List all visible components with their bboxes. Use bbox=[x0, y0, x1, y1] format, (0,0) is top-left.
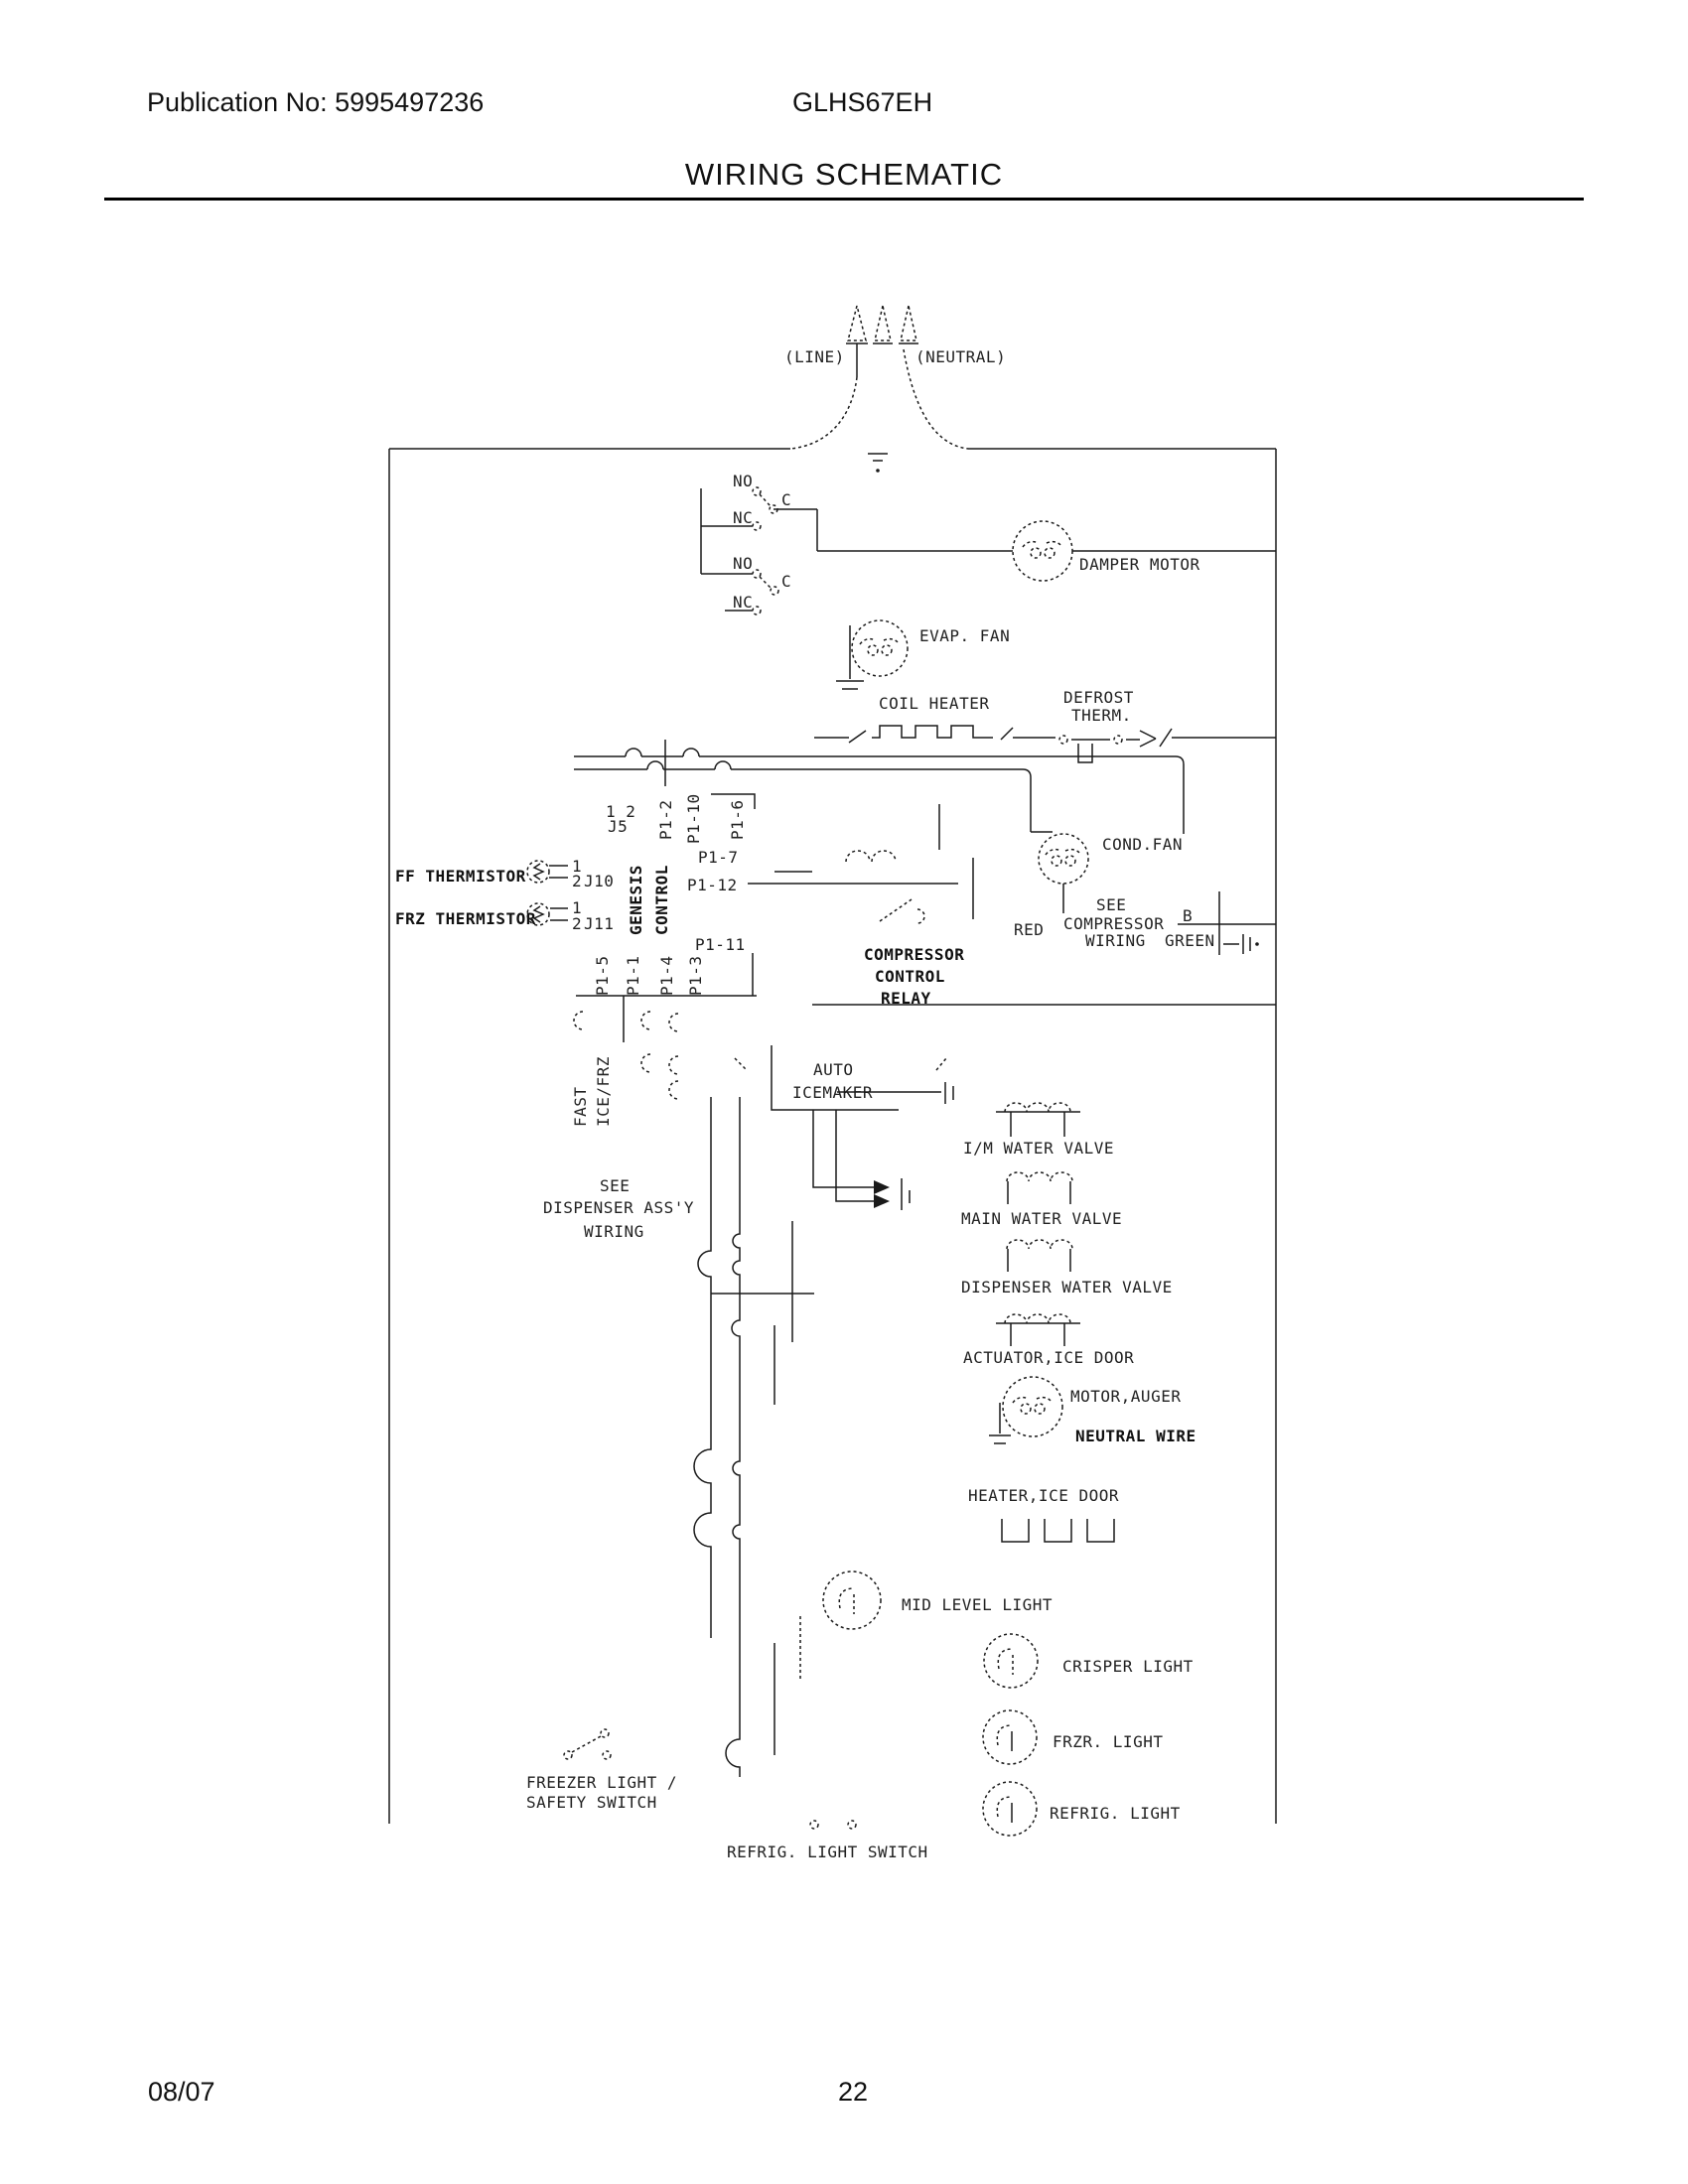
label-relay-2: CONTROL bbox=[875, 967, 945, 986]
motor-body bbox=[1013, 521, 1072, 581]
solenoid-coil-icon bbox=[996, 1314, 1080, 1346]
lamp-bulb bbox=[983, 1710, 1037, 1764]
contact-c bbox=[771, 587, 778, 595]
actuator-ice-door: ACTUATOR,ICE DOOR bbox=[963, 1314, 1134, 1367]
label-p1-6: P1-6 bbox=[728, 799, 747, 840]
label-neutral-wire: NEUTRAL WIRE bbox=[1075, 1427, 1196, 1445]
label-defrost-1: DEFROST bbox=[1063, 688, 1134, 707]
contact bbox=[601, 1729, 609, 1737]
motor-winding bbox=[1021, 1404, 1031, 1414]
im-water-valve: I/M WATER VALVE bbox=[963, 1103, 1114, 1158]
therm-contact bbox=[1114, 736, 1122, 744]
ground-bars bbox=[868, 454, 888, 461]
label-frz-thermistor: FRZ THERMISTOR bbox=[395, 909, 536, 928]
lamp-icon bbox=[984, 1634, 1038, 1688]
mid-level-light: MID LEVEL LIGHT bbox=[823, 1571, 1053, 1629]
thermistor-icon bbox=[527, 861, 549, 883]
solenoid-coil-icon bbox=[1007, 1172, 1072, 1204]
wiring-schematic: (LINE) (NEUTRAL) NO C NC NO C NC bbox=[0, 0, 1688, 2184]
label-j10: J10 bbox=[584, 872, 614, 890]
label-relay-1: COMPRESSOR bbox=[864, 945, 964, 964]
ground-icon bbox=[868, 454, 888, 473]
dispenser-water-valve: DISPENSER WATER VALVE bbox=[961, 1240, 1173, 1297]
auger-motor: MOTOR,AUGER NEUTRAL WIRE bbox=[989, 1377, 1196, 1445]
contact bbox=[603, 1751, 611, 1759]
door-switches: NO C NC NO C NC bbox=[701, 472, 1276, 614]
switch-icon bbox=[564, 1729, 611, 1759]
motor-arcs bbox=[1013, 1398, 1053, 1403]
main-water-valve: MAIN WATER VALVE bbox=[961, 1172, 1122, 1228]
label-j11: J11 bbox=[584, 914, 614, 933]
contact-nc bbox=[753, 607, 761, 614]
coil-leads bbox=[1008, 1181, 1070, 1204]
wire-dot bbox=[1255, 942, 1259, 946]
cond-fan: COND.FAN bbox=[1039, 834, 1183, 884]
label-green: GREEN bbox=[1165, 931, 1215, 950]
contact bbox=[810, 1821, 818, 1829]
motor-icon bbox=[1003, 1377, 1062, 1436]
lamp-bulb bbox=[984, 1634, 1038, 1688]
label-p1-7: P1-7 bbox=[698, 848, 739, 867]
ground-icon bbox=[836, 625, 864, 689]
frz-thermistor: FRZ THERMISTOR 1 2 J11 bbox=[395, 898, 614, 933]
solenoid-coil-icon bbox=[1007, 1240, 1072, 1272]
heater-element-icon bbox=[872, 726, 993, 738]
solenoid-coil-icon bbox=[996, 1103, 1080, 1137]
lamp-filament bbox=[998, 1649, 1013, 1669]
motor-body bbox=[1003, 1377, 1062, 1436]
switch-blade bbox=[760, 494, 771, 506]
label-frzr-light: FRZR. LIGHT bbox=[1053, 1732, 1163, 1751]
label-p1-5: P1-5 bbox=[593, 955, 612, 996]
label-wiring: WIRING bbox=[1085, 931, 1146, 950]
label-motor-auger: MOTOR,AUGER bbox=[1070, 1387, 1181, 1406]
motor-arcs bbox=[1046, 850, 1081, 855]
connector-pin-icon bbox=[874, 1194, 890, 1208]
lamp-icon bbox=[983, 1710, 1037, 1764]
lamp-bulb bbox=[983, 1782, 1037, 1836]
lamp-filament bbox=[997, 1725, 1012, 1745]
motor-icon bbox=[1039, 834, 1088, 884]
motor-winding bbox=[1065, 856, 1075, 866]
ground-bars bbox=[989, 1403, 1011, 1443]
lamp-filament bbox=[839, 1588, 854, 1608]
compressor-control-relay: COMPRESSOR CONTROL RELAY bbox=[774, 804, 1276, 1008]
relay-blade bbox=[880, 899, 924, 923]
coil-bumps bbox=[1007, 1172, 1072, 1181]
label-b: B bbox=[1183, 906, 1193, 925]
label-coil-heater: COIL HEATER bbox=[879, 694, 989, 713]
label-refrig-light-switch: REFRIG. LIGHT SWITCH bbox=[727, 1843, 928, 1861]
label-refrig-light: REFRIG. LIGHT bbox=[1050, 1804, 1181, 1823]
label-control: CONTROL bbox=[652, 865, 671, 935]
harness-wires bbox=[694, 1097, 814, 1777]
label-p1-2: P1-2 bbox=[656, 799, 675, 840]
label-p1-1: P1-1 bbox=[624, 955, 642, 996]
frame-lines bbox=[389, 449, 1276, 1824]
contact-no bbox=[753, 570, 761, 578]
label-line: (LINE) bbox=[784, 347, 845, 366]
motor-winding bbox=[868, 645, 878, 655]
contact-nc bbox=[753, 522, 761, 530]
footer-page-number: 22 bbox=[838, 2077, 868, 2108]
label-im-water-valve: I/M WATER VALVE bbox=[963, 1139, 1114, 1158]
motor-winding bbox=[1031, 548, 1041, 558]
motor-winding bbox=[1052, 856, 1061, 866]
motor-icon bbox=[852, 620, 908, 676]
plug-prong-bases bbox=[846, 343, 918, 377]
footer-date: 08/07 bbox=[148, 2077, 215, 2108]
contact bbox=[564, 1751, 572, 1759]
label-c-2: C bbox=[781, 572, 791, 591]
refrig-light: REFRIG. LIGHT bbox=[983, 1782, 1181, 1836]
lamp-icon bbox=[823, 1571, 881, 1629]
label-p1-3: P1-3 bbox=[686, 955, 705, 996]
frzr-light: FRZR. LIGHT bbox=[983, 1710, 1163, 1764]
icemaker-circuit: FAST ICE/FRZ AUTO ICEMAKER SEE DISPENSER… bbox=[543, 1012, 953, 1777]
coil-bumps bbox=[1005, 1314, 1070, 1323]
label-no-2: NO bbox=[733, 554, 753, 573]
label-dispenser-water-valve: DISPENSER WATER VALVE bbox=[961, 1278, 1173, 1297]
label-red: RED bbox=[1014, 920, 1044, 939]
refrig-light-switch: REFRIG. LIGHT SWITCH bbox=[727, 1821, 928, 1861]
label-ice-frz: ICE/FRZ bbox=[594, 1056, 613, 1127]
contact bbox=[848, 1821, 856, 1829]
label-fast: FAST bbox=[571, 1086, 590, 1127]
heater-element-icon bbox=[1002, 1519, 1114, 1542]
ground-icon bbox=[989, 1403, 1011, 1443]
coil-bumps bbox=[1005, 1103, 1070, 1112]
motor-icon bbox=[1013, 521, 1072, 581]
defrost-circuit: COIL HEATER DEFROST THERM. bbox=[814, 688, 1276, 762]
label-p1-4: P1-4 bbox=[657, 955, 676, 996]
label-defrost-2: THERM. bbox=[1071, 706, 1132, 725]
relay-wires bbox=[774, 804, 1276, 1005]
label-damper-motor: DAMPER MOTOR bbox=[1079, 555, 1200, 574]
ice-door-heater: HEATER,ICE DOOR bbox=[968, 1486, 1119, 1542]
label-freezer-switch-1: FREEZER LIGHT / bbox=[526, 1773, 677, 1792]
icemaker-wires bbox=[772, 1045, 953, 1210]
label-nc-2: NC bbox=[733, 593, 753, 612]
label-actuator-ice-door: ACTUATOR,ICE DOOR bbox=[963, 1348, 1134, 1367]
label-main-water-valve: MAIN WATER VALVE bbox=[961, 1209, 1122, 1228]
switch-blade bbox=[572, 1736, 601, 1752]
ground-dot bbox=[876, 469, 880, 473]
motor-winding bbox=[882, 645, 892, 655]
document-page: Publication No: 5995497236 GLHS67EH WIRI… bbox=[0, 0, 1688, 2184]
label-p1-11: P1-11 bbox=[695, 935, 746, 954]
label-relay-3: RELAY bbox=[881, 989, 931, 1008]
coil-leads bbox=[996, 1323, 1080, 1346]
connector-pin-icon bbox=[874, 1180, 890, 1194]
lamp-bulb bbox=[823, 1571, 881, 1629]
label-evap-fan: EVAP. FAN bbox=[919, 626, 1010, 645]
bus-line-2 bbox=[574, 761, 1031, 832]
label-mid-level-light: MID LEVEL LIGHT bbox=[902, 1595, 1053, 1614]
label-heater-ice-door: HEATER,ICE DOOR bbox=[968, 1486, 1119, 1505]
evap-fan: EVAP. FAN bbox=[836, 620, 1010, 689]
label-no-1: NO bbox=[733, 472, 753, 490]
motor-winding bbox=[1035, 1404, 1045, 1414]
crisper-light: CRISPER LIGHT bbox=[984, 1634, 1194, 1688]
label-see: SEE bbox=[1096, 895, 1126, 914]
switch-blade bbox=[760, 577, 772, 589]
label-nc-1: NC bbox=[733, 508, 753, 527]
motor-winding bbox=[1045, 548, 1055, 558]
connector-arcs-icon bbox=[574, 1012, 946, 1099]
coil-leads bbox=[996, 1112, 1080, 1137]
label-frz-pin2: 2 bbox=[572, 914, 582, 933]
thermistor-leads bbox=[549, 866, 568, 878]
plug-prongs bbox=[848, 306, 916, 341]
contact-no bbox=[753, 487, 761, 495]
label-c-1: C bbox=[781, 490, 791, 509]
switch-2-icon bbox=[753, 570, 778, 614]
connector-arrow-icon bbox=[1140, 729, 1172, 747]
label-ff-thermistor: FF THERMISTOR bbox=[395, 867, 526, 886]
label-see-disp-1: SEE bbox=[600, 1176, 630, 1195]
label-p1-12: P1-12 bbox=[687, 876, 738, 894]
motor-arcs bbox=[860, 639, 900, 644]
motor-body bbox=[852, 620, 908, 676]
freezer-safety-switch: FREEZER LIGHT / SAFETY SWITCH bbox=[526, 1729, 677, 1812]
label-freezer-switch-2: SAFETY SWITCH bbox=[526, 1793, 657, 1812]
coil-bumps bbox=[1007, 1240, 1072, 1249]
defrost-wires bbox=[814, 728, 1276, 743]
label-crisper-light: CRISPER LIGHT bbox=[1062, 1657, 1194, 1676]
thermistor-body bbox=[527, 861, 549, 883]
thermistor-zigzag bbox=[534, 864, 543, 880]
lamp-icon bbox=[983, 1782, 1037, 1836]
motor-body bbox=[1039, 834, 1088, 884]
label-cond-fan: COND.FAN bbox=[1102, 835, 1183, 854]
label-see-disp-2: DISPENSER ASS'Y bbox=[543, 1198, 694, 1217]
motor-arcs bbox=[1023, 542, 1062, 547]
power-plug-icon bbox=[846, 306, 918, 377]
label-see-disp-3: WIRING bbox=[584, 1222, 644, 1241]
compressor-note: RED SEE COMPRESSOR WIRING B GREEN bbox=[1014, 891, 1276, 955]
label-genesis: GENESIS bbox=[627, 865, 645, 935]
defrost-therm-icon bbox=[1078, 744, 1092, 762]
label-ff-pin2: 2 bbox=[572, 872, 582, 890]
label-j5: J5 bbox=[608, 817, 628, 836]
ground-bars bbox=[836, 625, 864, 689]
ff-thermistor: FF THERMISTOR 1 2 J10 bbox=[395, 857, 614, 890]
label-neutral: (NEUTRAL) bbox=[915, 347, 1006, 366]
label-auto: AUTO bbox=[813, 1060, 854, 1079]
relay-coil-icon bbox=[846, 851, 896, 862]
label-p1-10: P1-10 bbox=[684, 793, 703, 844]
lamp-filament bbox=[997, 1797, 1012, 1817]
therm-contact bbox=[1059, 736, 1067, 744]
coil-leads bbox=[1008, 1249, 1070, 1272]
thermistor-leads bbox=[550, 908, 568, 920]
